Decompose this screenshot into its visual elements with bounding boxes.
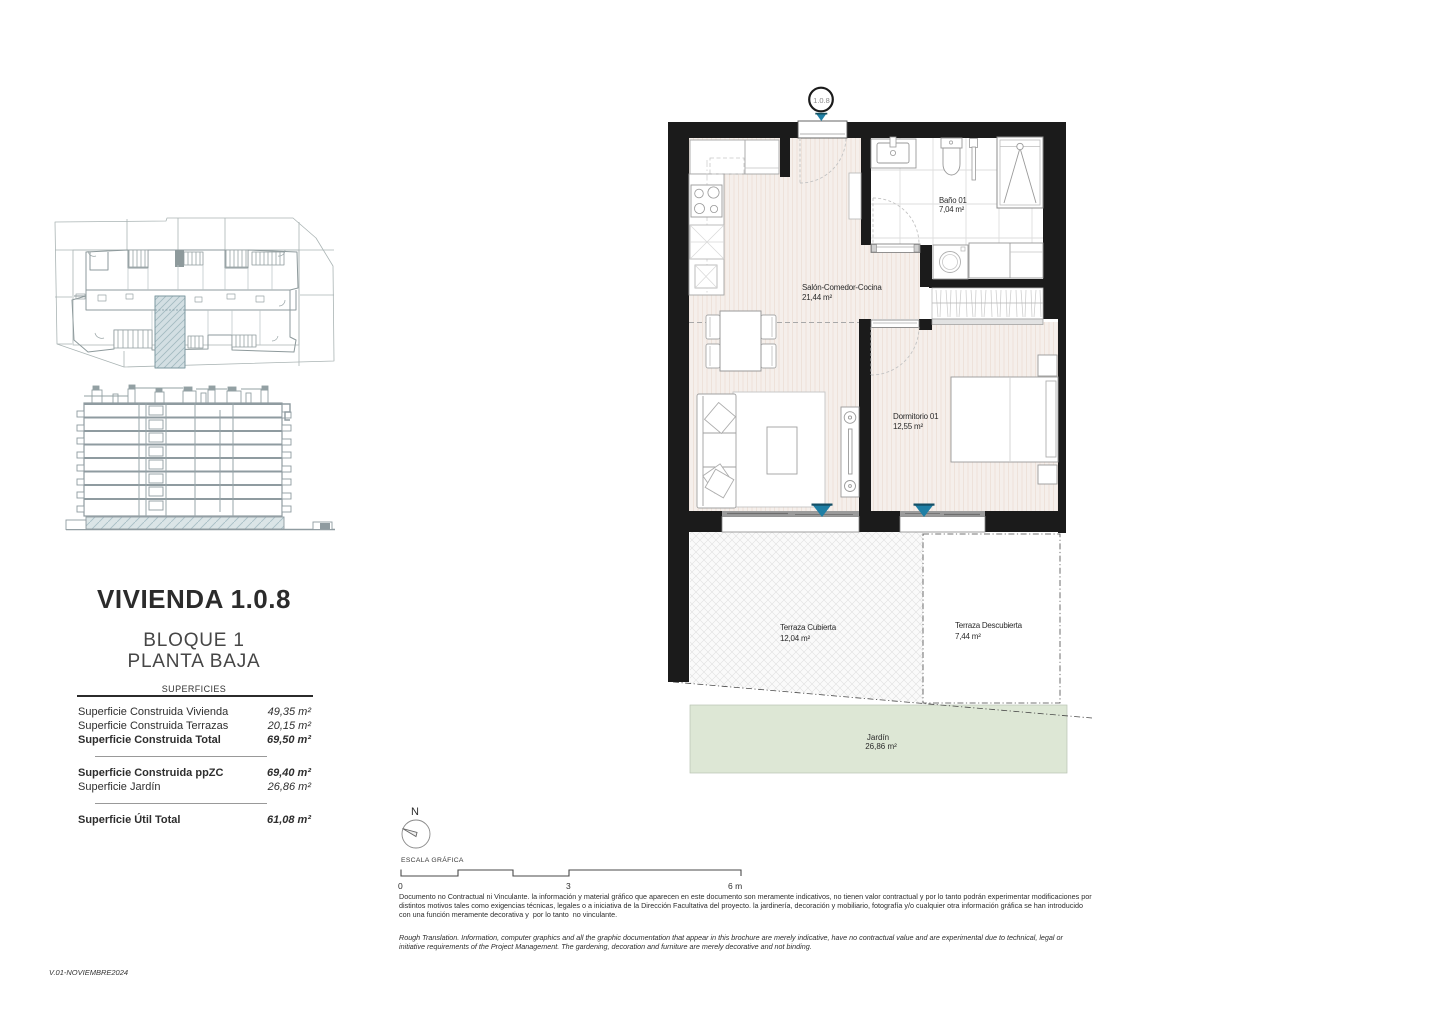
svg-text:26,86 m²: 26,86 m²: [865, 742, 897, 751]
svg-text:Terraza Cubierta: Terraza Cubierta: [780, 623, 837, 632]
svg-text:N: N: [411, 806, 419, 818]
svg-text:6 m: 6 m: [728, 881, 742, 891]
svg-text:7,44 m²: 7,44 m²: [955, 632, 981, 641]
svg-text:ESCALA GRÁFICA: ESCALA GRÁFICA: [401, 855, 464, 864]
svg-text:Jardín: Jardín: [867, 733, 889, 742]
svg-text:3: 3: [566, 881, 571, 891]
svg-text:0: 0: [398, 881, 403, 891]
svg-text:12,04 m²: 12,04 m²: [780, 634, 811, 643]
svg-text:Dormitorio 01: Dormitorio 01: [893, 412, 939, 421]
svg-text:Terraza Descubierta: Terraza Descubierta: [955, 621, 1023, 630]
svg-text:21,44 m²: 21,44 m²: [802, 293, 833, 302]
svg-text:Baño 01: Baño 01: [939, 196, 967, 205]
svg-text:12,55 m²: 12,55 m²: [893, 422, 924, 431]
svg-text:1.0.8: 1.0.8: [813, 96, 830, 105]
svg-text:Salón-Comedor-Cocina: Salón-Comedor-Cocina: [802, 283, 882, 292]
svg-text:7,04 m²: 7,04 m²: [939, 205, 965, 214]
